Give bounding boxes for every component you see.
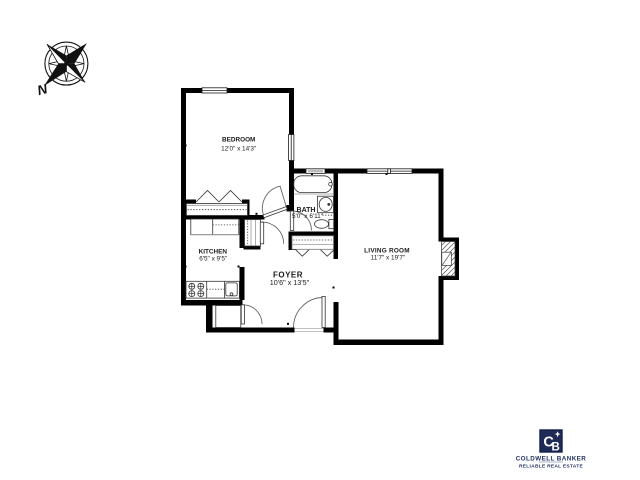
svg-text:10'6" x 13'5": 10'6" x 13'5" — [270, 278, 310, 287]
svg-text:11'7" x 19'7": 11'7" x 19'7" — [371, 255, 406, 262]
svg-text:RELIABLE REAL ESTATE: RELIABLE REAL ESTATE — [519, 463, 583, 469]
svg-text:12'0" x 14'3": 12'0" x 14'3" — [221, 146, 256, 153]
svg-text:LIVING ROOM: LIVING ROOM — [364, 247, 410, 254]
svg-text:5'0" x 6'11": 5'0" x 6'11" — [292, 213, 323, 220]
svg-text:BEDROOM: BEDROOM — [222, 137, 255, 144]
svg-text:B: B — [552, 441, 560, 453]
svg-text:KITCHEN: KITCHEN — [199, 248, 228, 255]
svg-text:6'5" x 9'5": 6'5" x 9'5" — [199, 255, 227, 262]
